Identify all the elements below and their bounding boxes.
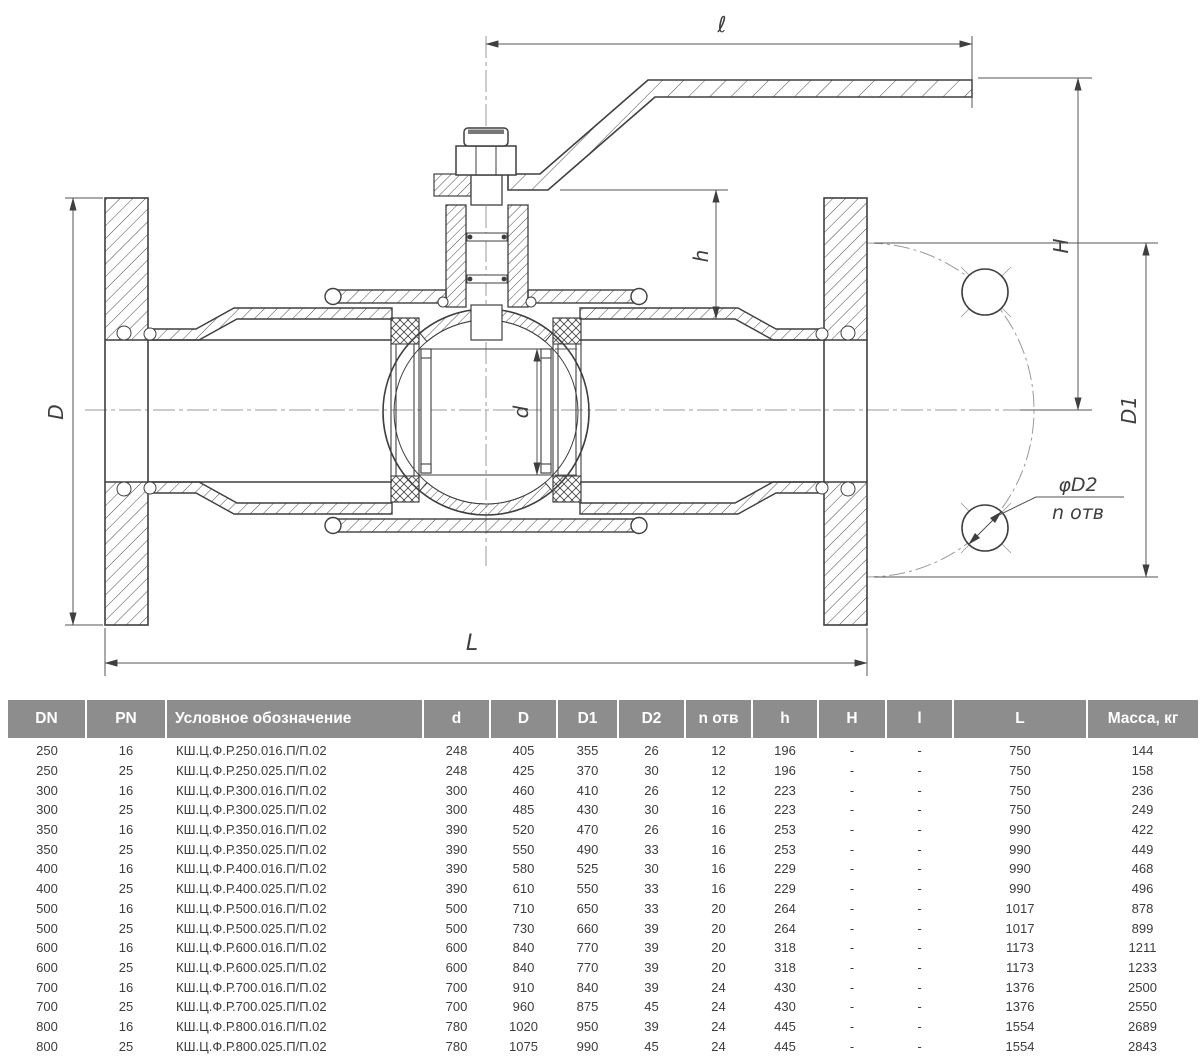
stem-nut (456, 146, 516, 175)
table-cell: 39 (618, 958, 685, 978)
table-cell: 2550 (1087, 997, 1198, 1017)
table-cell: 16 (685, 800, 752, 820)
table-cell: 600 (423, 958, 490, 978)
table-cell: 300 (423, 800, 490, 820)
table-cell: 229 (752, 879, 818, 899)
table-cell: 300 (8, 780, 86, 800)
table-cell: КШ.Ц.Ф.Р.800.016.П/П.02 (166, 1017, 423, 1037)
table-cell: 430 (752, 997, 818, 1017)
table-row: 25025КШ.Ц.Ф.Р.250.025.П/П.02248425370301… (8, 761, 1198, 781)
table-cell: 990 (953, 820, 1087, 840)
table-cell: 250 (8, 761, 86, 781)
table-row: 50016КШ.Ц.Ф.Р.500.016.П/П.02500710650332… (8, 899, 1198, 919)
dim-D-label: D (44, 404, 68, 419)
stem-tang (471, 305, 502, 340)
table-cell: 24 (685, 977, 752, 997)
stem-oring-lower (467, 275, 507, 283)
spec-table-section: DNPNУсловное обозначениеdDD1D2n отвhHlLМ… (0, 700, 1200, 1056)
table-cell: 430 (557, 800, 618, 820)
table-cell: 1376 (953, 977, 1087, 997)
table-cell: 318 (752, 938, 818, 958)
table-row: 70016КШ.Ц.Ф.Р.700.016.П/П.02700910840392… (8, 977, 1198, 997)
table-cell: 16 (86, 820, 166, 840)
dim-D1-label: D1 (1117, 396, 1141, 424)
table-cell: КШ.Ц.Ф.Р.350.025.П/П.02 (166, 839, 423, 859)
table-cell: - (818, 1036, 886, 1056)
table-cell: 248 (423, 761, 490, 781)
table-cell: 236 (1087, 780, 1198, 800)
table-cell: 39 (618, 1017, 685, 1037)
table-cell: 318 (752, 958, 818, 978)
table-cell: - (818, 740, 886, 761)
table-cell: - (818, 977, 886, 997)
table-cell: - (886, 899, 953, 919)
table-cell: 350 (8, 820, 86, 840)
table-cell: 20 (685, 918, 752, 938)
column-header-0: DN (8, 700, 86, 740)
table-cell: 730 (490, 918, 557, 938)
handle (508, 80, 972, 190)
table-cell: 750 (953, 780, 1087, 800)
table-cell: - (886, 938, 953, 958)
table-cell: - (886, 740, 953, 761)
table-cell: 390 (423, 839, 490, 859)
table-body: 25016КШ.Ц.Ф.Р.250.016.П/П.02248405355261… (8, 740, 1198, 1057)
table-cell: 878 (1087, 899, 1198, 919)
table-cell: 16 (685, 879, 752, 899)
table-cell: 710 (490, 899, 557, 919)
table-row: 50025КШ.Ц.Ф.Р.500.025.П/П.02500730660392… (8, 918, 1198, 938)
table-cell: 196 (752, 761, 818, 781)
table-cell: 390 (423, 859, 490, 879)
table-cell: 425 (490, 761, 557, 781)
table-cell: 500 (8, 918, 86, 938)
table-row: 35016КШ.Ц.Ф.Р.350.016.П/П.02390520470261… (8, 820, 1198, 840)
column-header-1: PN (86, 700, 166, 740)
table-cell: 800 (8, 1036, 86, 1056)
table-cell: 16 (86, 977, 166, 997)
table-cell: - (886, 761, 953, 781)
table-cell: 16 (685, 820, 752, 840)
dim-H (978, 78, 1092, 410)
column-header-12: Масса, кг (1087, 700, 1198, 740)
table-cell: - (886, 800, 953, 820)
table-cell: КШ.Ц.Ф.Р.800.025.П/П.02 (166, 1036, 423, 1056)
table-cell: КШ.Ц.Ф.Р.300.016.П/П.02 (166, 780, 423, 800)
table-cell: - (886, 997, 953, 1017)
table-cell: 840 (490, 958, 557, 978)
table-cell: 253 (752, 839, 818, 859)
table-cell: - (886, 859, 953, 879)
table-cell: КШ.Ц.Ф.Р.600.016.П/П.02 (166, 938, 423, 958)
table-cell: 12 (685, 761, 752, 781)
table-cell: 300 (423, 780, 490, 800)
table-cell: 780 (423, 1017, 490, 1037)
table-cell: 158 (1087, 761, 1198, 781)
table-cell: 400 (8, 879, 86, 899)
table-cell: - (818, 899, 886, 919)
table-cell: 25 (86, 997, 166, 1017)
column-header-10: l (886, 700, 953, 740)
column-header-2: Условное обозначение (166, 700, 423, 740)
table-cell: 1233 (1087, 958, 1198, 978)
hole-callout-d2: φD2 (1058, 474, 1097, 496)
table-cell: 2689 (1087, 1017, 1198, 1037)
table-cell: 840 (490, 938, 557, 958)
table-cell: 25 (86, 839, 166, 859)
table-cell: 350 (8, 839, 86, 859)
table-cell: 750 (953, 740, 1087, 761)
table-cell: 20 (685, 938, 752, 958)
table-cell: 248 (423, 740, 490, 761)
dim-h-label: h (689, 250, 713, 263)
column-header-3: d (423, 700, 490, 740)
table-cell: 25 (86, 958, 166, 978)
table-cell: 30 (618, 859, 685, 879)
table-cell: 39 (618, 918, 685, 938)
table-cell: 39 (618, 938, 685, 958)
table-cell: 12 (685, 740, 752, 761)
stem-assembly (434, 128, 536, 340)
table-cell: - (818, 997, 886, 1017)
table-cell: 25 (86, 879, 166, 899)
table-cell: 410 (557, 780, 618, 800)
table-cell: - (818, 859, 886, 879)
table-cell: 780 (423, 1036, 490, 1056)
table-cell: 580 (490, 859, 557, 879)
table-cell: - (886, 820, 953, 840)
table-cell: 400 (8, 859, 86, 879)
table-row: 40025КШ.Ц.Ф.Р.400.025.П/П.02390610550331… (8, 879, 1198, 899)
table-cell: 26 (618, 780, 685, 800)
table-head: DNPNУсловное обозначениеdDD1D2n отвhHlLМ… (8, 700, 1198, 740)
table-cell: 1554 (953, 1036, 1087, 1056)
column-header-11: L (953, 700, 1087, 740)
table-cell: 990 (953, 879, 1087, 899)
table-cell: - (886, 1036, 953, 1056)
column-header-9: H (818, 700, 886, 740)
table-row: 80016КШ.Ц.Ф.Р.800.016.П/П.02780102095039… (8, 1017, 1198, 1037)
table-cell: 840 (557, 977, 618, 997)
bolt-hole-top (962, 269, 1008, 315)
table-cell: 30 (618, 761, 685, 781)
table-cell: 2843 (1087, 1036, 1198, 1056)
table-cell: 229 (752, 859, 818, 879)
dim-H-label: H (1049, 238, 1073, 253)
table-cell: 30 (618, 800, 685, 820)
table-cell: 910 (490, 977, 557, 997)
table-row: 60016КШ.Ц.Ф.Р.600.016.П/П.02600840770392… (8, 938, 1198, 958)
table-cell: - (818, 761, 886, 781)
right-flange (824, 198, 867, 625)
gland-column-right (508, 205, 528, 307)
table-cell: 700 (423, 977, 490, 997)
table-cell: 700 (8, 977, 86, 997)
table-cell: 485 (490, 800, 557, 820)
table-cell: 223 (752, 800, 818, 820)
stem-oring-upper (467, 233, 507, 241)
table-cell: 1017 (953, 899, 1087, 919)
table-cell: - (886, 839, 953, 859)
table-cell: 26 (618, 820, 685, 840)
table-cell: КШ.Ц.Ф.Р.500.016.П/П.02 (166, 899, 423, 919)
table-header-row: DNPNУсловное обозначениеdDD1D2n отвhHlLМ… (8, 700, 1198, 740)
table-cell: 770 (557, 958, 618, 978)
table-cell: 990 (953, 859, 1087, 879)
table-cell: 660 (557, 918, 618, 938)
table-row: 40016КШ.Ц.Ф.Р.400.016.П/П.02390580525301… (8, 859, 1198, 879)
handle-washer-plate (434, 174, 471, 196)
table-cell: 449 (1087, 839, 1198, 859)
table-cell: 430 (752, 977, 818, 997)
table-cell: 24 (685, 997, 752, 1017)
table-cell: 16 (86, 859, 166, 879)
table-cell: 445 (752, 1036, 818, 1056)
table-row: 60025КШ.Ц.Ф.Р.600.025.П/П.02600840770392… (8, 958, 1198, 978)
valve-section-svg: ℓ H D1 h d D L φD2 (0, 0, 1200, 700)
table-cell: - (818, 918, 886, 938)
dim-D (65, 198, 103, 625)
table-cell: - (886, 879, 953, 899)
table-cell: 16 (685, 839, 752, 859)
table-cell: 520 (490, 820, 557, 840)
table-cell: 500 (423, 918, 490, 938)
ball-valve-drawing: ℓ H D1 h d D L φD2 (0, 0, 1200, 700)
table-cell: 370 (557, 761, 618, 781)
table-cell: 496 (1087, 879, 1198, 899)
table-cell: КШ.Ц.Ф.Р.400.016.П/П.02 (166, 859, 423, 879)
table-cell: 24 (685, 1036, 752, 1056)
table-cell: 550 (490, 839, 557, 859)
table-cell: 249 (1087, 800, 1198, 820)
table-cell: 12 (685, 780, 752, 800)
table-cell: 490 (557, 839, 618, 859)
dim-l-label: ℓ (716, 13, 726, 38)
table-cell: - (886, 1017, 953, 1037)
table-cell: 899 (1087, 918, 1198, 938)
dim-L-label: L (466, 631, 478, 656)
table-cell: 20 (685, 958, 752, 978)
table-cell: - (818, 938, 886, 958)
table-cell: - (818, 1017, 886, 1037)
table-cell: 600 (8, 938, 86, 958)
table-cell: 25 (86, 918, 166, 938)
table-cell: 16 (685, 859, 752, 879)
table-cell: 1554 (953, 1017, 1087, 1037)
table-cell: 16 (86, 740, 166, 761)
table-cell: 16 (86, 780, 166, 800)
column-header-4: D (490, 700, 557, 740)
table-cell: 468 (1087, 859, 1198, 879)
table-cell: 144 (1087, 740, 1198, 761)
table-cell: 460 (490, 780, 557, 800)
table-cell: 950 (557, 1017, 618, 1037)
table-cell: 800 (8, 1017, 86, 1037)
table-cell: 223 (752, 780, 818, 800)
hole-callout-notv: n отв (1052, 502, 1104, 524)
table-cell: 1173 (953, 938, 1087, 958)
table-row: 80025КШ.Ц.Ф.Р.800.025.П/П.02780107599045… (8, 1036, 1198, 1056)
table-cell: 445 (752, 1017, 818, 1037)
table-cell: 1017 (953, 918, 1087, 938)
table-cell: 990 (953, 839, 1087, 859)
table-cell: - (886, 977, 953, 997)
table-cell: 1211 (1087, 938, 1198, 958)
table-cell: 1173 (953, 958, 1087, 978)
table-cell: 250 (8, 740, 86, 761)
table-cell: 700 (423, 997, 490, 1017)
table-cell: КШ.Ц.Ф.Р.600.025.П/П.02 (166, 958, 423, 978)
table-cell: 45 (618, 997, 685, 1017)
table-cell: 45 (618, 1036, 685, 1056)
column-header-6: D2 (618, 700, 685, 740)
table-cell: 355 (557, 740, 618, 761)
table-cell: 960 (490, 997, 557, 1017)
table-cell: КШ.Ц.Ф.Р.500.025.П/П.02 (166, 918, 423, 938)
column-header-8: h (752, 700, 818, 740)
table-cell: 650 (557, 899, 618, 919)
table-cell: КШ.Ц.Ф.Р.250.025.П/П.02 (166, 761, 423, 781)
table-cell: 253 (752, 820, 818, 840)
table-cell: 33 (618, 899, 685, 919)
table-cell: 600 (423, 938, 490, 958)
table-cell: 20 (685, 899, 752, 919)
table-cell: 525 (557, 859, 618, 879)
table-cell: 16 (86, 899, 166, 919)
table-cell: 700 (8, 997, 86, 1017)
table-cell: КШ.Ц.Ф.Р.400.025.П/П.02 (166, 879, 423, 899)
table-cell: - (886, 780, 953, 800)
table-cell: 750 (953, 761, 1087, 781)
dim-L (105, 628, 867, 676)
table-cell: - (886, 958, 953, 978)
table-cell: 2500 (1087, 977, 1198, 997)
table-cell: 500 (8, 899, 86, 919)
table-row: 70025КШ.Ц.Ф.Р.700.025.П/П.02700960875452… (8, 997, 1198, 1017)
table-row: 35025КШ.Ц.Ф.Р.350.025.П/П.02390550490331… (8, 839, 1198, 859)
body-neck-left (148, 308, 392, 514)
table-cell: 33 (618, 879, 685, 899)
table-cell: - (818, 839, 886, 859)
table-cell: 600 (8, 958, 86, 978)
column-header-7: n отв (685, 700, 752, 740)
table-cell: 1075 (490, 1036, 557, 1056)
table-cell: 300 (8, 800, 86, 820)
table-cell: 770 (557, 938, 618, 958)
table-cell: 550 (557, 879, 618, 899)
table-cell: 1376 (953, 997, 1087, 1017)
table-cell: 33 (618, 839, 685, 859)
table-cell: 470 (557, 820, 618, 840)
table-cell: 16 (86, 938, 166, 958)
table-cell: КШ.Ц.Ф.Р.300.025.П/П.02 (166, 800, 423, 820)
gland-column-left (446, 205, 466, 307)
table-cell: 264 (752, 918, 818, 938)
table-cell: 39 (618, 977, 685, 997)
table-cell: 16 (86, 1017, 166, 1037)
column-header-5: D1 (557, 700, 618, 740)
table-cell: - (818, 820, 886, 840)
table-row: 30025КШ.Ц.Ф.Р.300.025.П/П.02300485430301… (8, 800, 1198, 820)
stem-neck (471, 175, 502, 205)
table-cell: 264 (752, 899, 818, 919)
table-cell: 25 (86, 761, 166, 781)
table-cell: - (818, 800, 886, 820)
table-cell: 25 (86, 800, 166, 820)
table-cell: 26 (618, 740, 685, 761)
table-cell: 1020 (490, 1017, 557, 1037)
table-cell: КШ.Ц.Ф.Р.350.016.П/П.02 (166, 820, 423, 840)
table-cell: 25 (86, 1036, 166, 1056)
body-neck-right (580, 308, 824, 514)
left-flange (105, 198, 148, 625)
table-cell: КШ.Ц.Ф.Р.700.025.П/П.02 (166, 997, 423, 1017)
table-row: 25016КШ.Ц.Ф.Р.250.016.П/П.02248405355261… (8, 740, 1198, 761)
table-cell: 24 (685, 1017, 752, 1037)
table-cell: 990 (557, 1036, 618, 1056)
table-cell: 405 (490, 740, 557, 761)
table-cell: 390 (423, 820, 490, 840)
table-cell: КШ.Ц.Ф.Р.250.016.П/П.02 (166, 740, 423, 761)
dim-d-label: d (509, 405, 533, 418)
table-row: 30016КШ.Ц.Ф.Р.300.016.П/П.02300460410261… (8, 780, 1198, 800)
table-cell: 875 (557, 997, 618, 1017)
table-cell: - (818, 958, 886, 978)
table-cell: - (886, 918, 953, 938)
dimension-table: DNPNУсловное обозначениеdDD1D2n отвhHlLМ… (8, 700, 1198, 1056)
table-cell: - (818, 780, 886, 800)
table-cell: 196 (752, 740, 818, 761)
table-cell: КШ.Ц.Ф.Р.700.016.П/П.02 (166, 977, 423, 997)
table-cell: 610 (490, 879, 557, 899)
table-cell: - (818, 879, 886, 899)
table-cell: 750 (953, 800, 1087, 820)
table-cell: 390 (423, 879, 490, 899)
table-cell: 500 (423, 899, 490, 919)
table-cell: 422 (1087, 820, 1198, 840)
